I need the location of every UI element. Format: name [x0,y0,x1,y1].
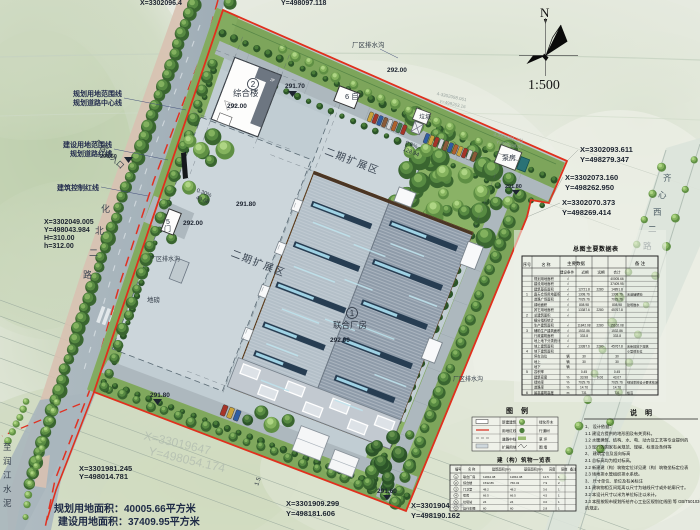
svg-text:14.76: 14.76 [613,386,621,390]
svg-text:1: 1 [455,475,457,479]
svg-text:泥: 泥 [3,498,12,508]
svg-text:292.00: 292.00 [183,220,203,227]
svg-text:N: N [540,5,550,20]
svg-text:规划用地面积：40005.66平方米: 规划用地面积：40005.66平方米 [54,502,197,515]
svg-text:√: √ [567,293,569,297]
svg-text:地上: 地上 [534,359,541,364]
svg-text:4.5: 4.5 [543,494,548,498]
svg-text:X=3302096.4: X=3302096.4 [140,0,182,7]
svg-text:√: √ [567,344,569,348]
svg-text:总图主要数据表: 总图主要数据表 [573,245,619,253]
svg-text:7029.76: 7029.76 [611,298,623,302]
svg-text:292.00: 292.00 [387,67,407,74]
svg-text:规划道路中心线: 规划道路中心线 [73,98,122,107]
svg-text:60: 60 [510,506,514,510]
svg-text:2280: 2280 [596,344,603,348]
svg-text:小型停车位: 小型停车位 [627,349,642,354]
svg-text:3: 3 [455,487,457,491]
svg-text:绿地面积: 绿地面积 [534,302,548,307]
svg-text:24: 24 [483,500,487,504]
svg-text:24: 24 [510,500,514,504]
svg-text:水: 水 [3,484,12,494]
svg-text:联合厂房: 联合厂房 [463,474,475,479]
svg-text:1:500: 1:500 [528,78,560,93]
svg-text:291.80: 291.80 [150,392,170,399]
svg-text:2、 建筑定位及竖向标高: 2、 建筑定位及竖向标高 [585,450,630,457]
svg-text:说 明: 说 明 [630,408,655,417]
svg-text:√: √ [567,282,569,286]
svg-text:无新建地下建筑: 无新建地下建筑 [627,343,649,348]
svg-text:7029.76: 7029.76 [611,381,623,385]
svg-text:30: 30 [582,360,586,364]
svg-text:3、 尺寸单位、单位及有关标注: 3、 尺寸单位、单位及有关标注 [585,477,644,484]
svg-text:地磅: 地磅 [147,295,161,304]
svg-text:5: 5 [455,500,457,504]
svg-text:7029.76: 7029.76 [578,298,590,302]
svg-text:二: 二 [89,248,98,258]
svg-text:3.3 本图按照市规划所给齐心工业区规划红线图 等 GB/T: 3.3 本图按照市规划所给齐心工业区规划红线图 等 GB/T50103-2010… [585,498,700,505]
svg-text:道路广场面积: 道路广场面积 [534,297,554,302]
svg-text:Y=498262.950: Y=498262.950 [565,183,614,192]
svg-text:1532.86: 1532.86 [483,481,494,485]
svg-text:路: 路 [83,269,92,280]
svg-text:综合楼: 综合楼 [463,480,472,485]
svg-text:图 例: 图 例 [506,406,531,415]
svg-text:2280: 2280 [596,308,603,312]
svg-text:13387.6: 13387.6 [578,308,590,312]
svg-text:2.2 新建建（构）筑物定位详见建（构）筑物坐标定位表: 2.2 新建建（构）筑物定位详见建（构）筑物坐标定位表 [585,464,689,471]
svg-text:联合厂房: 联合厂房 [333,320,367,330]
svg-text:30: 30 [615,360,619,364]
svg-text:层数: 层数 [561,467,568,472]
svg-text:名 称: 名 称 [468,467,476,472]
svg-text:1308.76: 1308.76 [611,293,623,297]
svg-text:2.1 总标高均为相对标高。: 2.1 总标高均为相对标高。 [585,457,634,464]
svg-text:远期: 远期 [597,270,605,275]
svg-text:辅助生产建筑面积: 辅助生产建筑面积 [534,328,561,333]
svg-text:0.45: 0.45 [581,370,587,374]
svg-text:731: 731 [614,391,620,395]
svg-text:道路中线: 道路中线 [502,436,517,441]
svg-text:2: 2 [455,481,457,485]
svg-text:合计: 合计 [613,270,621,275]
svg-text:333.8: 333.8 [613,334,621,338]
svg-text:心: 心 [658,190,667,200]
svg-text:生产建筑面积: 生产建筑面积 [534,323,554,328]
svg-text:高度: 高度 [549,467,556,472]
svg-text:Y=498269.414: Y=498269.414 [562,208,612,217]
svg-text:露天仓场用地面积: 露天仓场用地面积 [534,292,561,297]
svg-text:11842.08: 11842.08 [577,324,590,328]
svg-text:66.5: 66.5 [483,494,489,498]
svg-text:11842.08: 11842.08 [510,475,523,479]
svg-text:最高建筑高度: 最高建筑高度 [534,390,554,395]
svg-text:48.2: 48.2 [510,487,516,491]
svg-text:291.70: 291.70 [285,83,305,90]
svg-text:总建筑面积: 总建筑面积 [534,312,551,317]
svg-text:规划用地面积: 规划用地面积 [534,276,554,281]
svg-text:√: √ [567,287,569,291]
svg-text:X=3302070.373: X=3302070.373 [562,198,615,207]
svg-text:33.98: 33.98 [580,375,588,379]
svg-text:%: % [567,381,570,385]
svg-text:序号: 序号 [523,261,531,267]
svg-text:12.5: 12.5 [543,475,549,479]
svg-text:45767.8: 45767.8 [611,308,623,312]
svg-text:新建建筑: 新建建筑 [502,420,517,425]
svg-text:道路率: 道路率 [534,385,545,390]
svg-text:润: 润 [3,456,12,466]
svg-text:2.3 场地排水管组织排水系统。: 2.3 场地排水管组织排水系统。 [585,471,642,478]
svg-text:门卫室: 门卫室 [463,486,472,491]
svg-text:X=3302073.160: X=3302073.160 [565,173,618,182]
svg-text:建筑控制红线: 建筑控制红线 [57,183,99,192]
svg-text:14.76: 14.76 [580,386,588,390]
svg-text:Y=498097.118: Y=498097.118 [281,0,326,7]
svg-text:3.6: 3.6 [543,487,548,491]
svg-text:√: √ [567,308,569,312]
svg-text:292.00: 292.00 [227,103,247,110]
svg-text:檐高: 檐高 [627,390,633,395]
svg-text:齐: 齐 [663,173,672,183]
svg-text:其它用地面积: 其它用地面积 [534,307,554,312]
svg-text:290.50: 290.50 [100,154,117,160]
svg-text:7.9: 7.9 [543,481,548,485]
svg-text:2280: 2280 [596,287,603,291]
svg-text:X=3302093.611: X=3302093.611 [580,145,633,154]
svg-text:766.43: 766.43 [510,481,520,485]
svg-text:北: 北 [95,226,104,236]
svg-text:Y=498014.781: Y=498014.781 [79,472,128,481]
svg-text:4: 4 [455,494,457,498]
svg-text:建（构）筑物一览表: 建（构）筑物一览表 [497,456,551,464]
svg-text:停车泊位: 停车泊位 [534,354,548,359]
svg-text:厂区排水沟: 厂区排水沟 [352,40,385,49]
svg-text:1: 1 [526,293,528,297]
svg-text:9.06: 9.06 [597,375,603,379]
svg-text:绿化乔木: 绿化乔木 [539,420,554,425]
svg-text:√: √ [567,339,569,343]
svg-text:√: √ [567,329,569,333]
svg-text:30: 30 [582,355,586,359]
svg-text:731: 731 [581,391,587,395]
svg-text:泵房: 泵房 [502,153,516,162]
svg-text:X=3301909.299: X=3301909.299 [286,499,339,508]
svg-text:备注: 备注 [570,467,577,472]
svg-text:√: √ [567,298,569,302]
svg-text:的规定。: 的规定。 [585,505,602,512]
svg-text:808.98: 808.98 [579,303,589,307]
svg-text:3.0: 3.0 [543,500,548,504]
svg-text:江: 江 [3,470,12,480]
svg-text:扩展用地: 扩展用地 [502,445,517,450]
svg-text:草 坪: 草 坪 [539,436,548,441]
svg-text:333.8: 333.8 [580,334,588,338]
svg-text:综合楼: 综合楼 [233,88,259,98]
svg-text:5: 5 [526,370,528,374]
svg-text:40005.66: 40005.66 [610,277,624,281]
svg-text:无基础硬地: 无基础硬地 [627,292,642,297]
svg-text:11842.08: 11842.08 [483,475,496,479]
svg-text:√: √ [567,313,569,317]
svg-text:编号: 编号 [455,467,461,472]
svg-text:1.2 水暖建筑、结构、水、电、动力及工艺等专业提供的: 1.2 水暖建筑、结构、水、电、动力及工艺等专业提供的 [585,437,688,444]
svg-text:化: 化 [101,203,110,214]
svg-text:建设用地面积: 建设用地面积 [534,281,554,286]
svg-text:30: 30 [615,355,619,359]
svg-text:1.1 建设方提供的地形图及有关资料。: 1.1 建设方提供的地形图及有关资料。 [585,430,655,437]
svg-text:2280: 2280 [596,324,603,328]
svg-text:m: m [567,391,570,395]
svg-text:行政建筑面积: 行政建筑面积 [534,333,554,338]
svg-text:60: 60 [483,506,487,510]
svg-text:备 注: 备 注 [635,260,646,267]
svg-text:垃圾: 垃圾 [419,113,431,121]
svg-text:7029.76: 7029.76 [578,381,590,385]
svg-text:0.45: 0.45 [614,370,620,374]
svg-text:容积率: 容积率 [534,369,545,374]
svg-text:1532.86: 1532.86 [578,329,590,333]
svg-text:近期: 近期 [581,270,589,275]
svg-text:名 称: 名 称 [541,261,550,267]
svg-text:48.2: 48.2 [483,487,489,491]
svg-text:厂区排水沟: 厂区排水沟 [150,255,180,263]
svg-text:66.5: 66.5 [510,494,516,498]
svg-text:291.80: 291.80 [505,184,522,190]
svg-text:√: √ [567,334,569,338]
svg-text:43.07: 43.07 [613,375,621,379]
svg-text:1、 设计依据：: 1、 设计依据： [585,423,614,430]
svg-text:6: 6 [455,506,457,510]
svg-text:垃圾站: 垃圾站 [463,499,472,504]
svg-text:自行车棚: 自行车棚 [463,505,475,510]
svg-text:3.1 建筑物相互间距离以尺寸为轴线尺寸或外轮廓尺寸。: 3.1 建筑物相互间距离以尺寸为轴线尺寸或外轮廓尺寸。 [585,484,688,491]
svg-text:13387.6: 13387.6 [578,344,590,348]
svg-text:3.2 本设计尺寸以米为单位标注以米计。: 3.2 本设计尺寸以米为单位标注以米计。 [585,491,659,498]
svg-text:1: 1 [350,309,355,318]
svg-text:绿地率按设计要求核定: 绿地率按设计要求核定 [627,380,658,385]
svg-text:规划用地范围线: 规划用地范围线 [73,89,122,98]
svg-text:Y=498279.347: Y=498279.347 [580,155,629,164]
svg-text:1308.76: 1308.76 [578,293,590,297]
svg-text:建筑基底面积: 建筑基底面积 [534,286,554,291]
svg-text:1.3 现行的国家有关规范、规程、标准及条例等: 1.3 现行的国家有关规范、规程、标准及条例等 [585,443,672,450]
svg-text:Y=498181.606: Y=498181.606 [286,509,335,518]
svg-text:用地红线: 用地红线 [502,428,517,433]
svg-text:主要数据: 主要数据 [567,260,585,267]
svg-text:5: 5 [166,219,170,226]
svg-text:Y=498190.162: Y=498190.162 [411,511,460,520]
svg-text:围 墙: 围 墙 [539,445,548,450]
svg-text:建筑散水: 建筑散水 [627,302,640,307]
svg-text:37409.95: 37409.95 [610,282,624,286]
svg-text:行道树: 行道树 [539,428,550,433]
svg-text:291.80: 291.80 [236,201,256,208]
svg-text:门: 门 [164,224,171,233]
svg-text:地上地下分类统计: 地上地下分类统计 [534,338,561,343]
svg-text:绿地率: 绿地率 [534,380,545,385]
svg-text:45767.8: 45767.8 [611,344,623,348]
svg-text:地下: 地下 [534,364,541,369]
svg-text:建设条件: 建设条件 [560,270,575,275]
svg-text:2: 2 [526,313,528,317]
svg-text:292.00: 292.00 [330,337,350,344]
svg-text:地上建筑面积: 地上建筑面积 [534,343,554,348]
svg-text:3: 3 [526,329,528,333]
svg-text:地下建筑面积: 地下建筑面积 [534,349,554,354]
svg-text:基底面积(m²): 基底面积(m²) [524,467,543,472]
svg-text:14891.8: 14891.8 [611,287,623,291]
svg-text:X=3302049.005: X=3302049.005 [44,219,94,226]
svg-text:15102.08: 15102.08 [610,324,624,328]
svg-text:√: √ [567,324,569,328]
svg-text:西: 西 [653,207,662,217]
svg-text:细分指标统计: 细分指标统计 [534,317,554,322]
svg-text:建筑密度: 建筑密度 [534,374,548,379]
svg-text:h=312.00: h=312.00 [44,243,74,250]
svg-text:√: √ [567,303,569,307]
svg-text:%: % [567,375,570,379]
svg-text:2.8: 2.8 [543,506,548,510]
svg-text:1532.86: 1532.86 [611,329,623,333]
svg-text:建筑面积(m²): 建筑面积(m²) [492,467,511,472]
svg-text:厂区排水沟: 厂区排水沟 [453,375,483,383]
svg-text:12721.8: 12721.8 [578,287,590,291]
svg-text:4: 4 [526,350,528,354]
svg-text:808.98: 808.98 [612,303,622,307]
svg-text:√: √ [567,277,569,281]
svg-text:至: 至 [3,442,12,452]
svg-text:291.60: 291.60 [377,488,397,495]
svg-text:6: 6 [526,391,528,395]
svg-text:泵房: 泵房 [463,493,469,498]
svg-text:H=310.00: H=310.00 [44,235,75,242]
svg-text:6 自: 6 自 [345,91,359,101]
svg-text:%: % [567,386,570,390]
svg-text:Y=498043.984: Y=498043.984 [44,227,90,234]
svg-text:建设用地面积：37409.95平方米: 建设用地面积：37409.95平方米 [57,515,201,528]
